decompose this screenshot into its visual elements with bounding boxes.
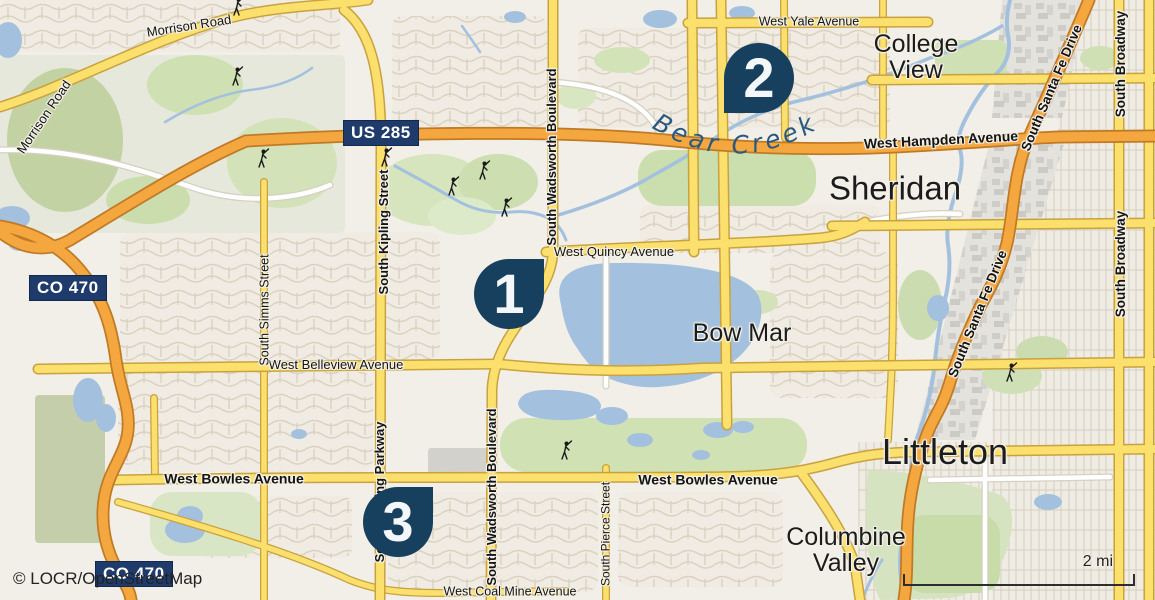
scale-tick-right — [1133, 574, 1135, 584]
place-label-columbine-valley: Columbine Valley — [781, 524, 911, 577]
marker-3-number: 3 — [382, 494, 413, 550]
place-label-littleton: Littleton — [882, 433, 1008, 471]
highway-shield-us285: US 285 — [343, 120, 419, 146]
scale-line — [903, 574, 1135, 586]
road-label-west-bowles-avenue-e: West Bowles Avenue — [638, 473, 778, 488]
place-label-college-view: College View — [856, 31, 976, 84]
highway-shield-co470-north: CO 470 — [29, 275, 107, 301]
road-label-south-kipling-street: South Kipling Street — [377, 170, 391, 295]
map-marker-3[interactable]: 3 — [363, 487, 433, 557]
road-label-south-broadway-s: South Broadway — [1114, 211, 1128, 318]
road-label-south-broadway-n: South Broadway — [1114, 11, 1128, 118]
road-label-south-simms-street: South Simms Street — [258, 254, 271, 365]
place-label-sheridan: Sheridan — [829, 172, 961, 207]
marker-2-number: 2 — [743, 50, 774, 106]
road-label-west-bowles-avenue-w: West Bowles Avenue — [164, 472, 304, 487]
map-marker-2[interactable]: 2 — [724, 43, 794, 113]
map-attribution: © LOCR/OpenStreetMap — [13, 569, 202, 589]
place-label-bow-mar: Bow Mar — [693, 320, 792, 346]
road-label-west-yale-avenue: West Yale Avenue — [759, 15, 860, 28]
scale-tick-left — [903, 574, 905, 584]
scale-bar: 2 mi — [903, 553, 1135, 586]
map-marker-1[interactable]: 1 — [474, 259, 544, 329]
road-label-south-wadsworth-boulevard-s: South Wadsworth Boulevard — [485, 408, 499, 585]
road-label-south-wadsworth-boulevard-n: South Wadsworth Boulevard — [545, 68, 559, 245]
road-label-west-quincy-avenue: West Quincy Avenue — [554, 245, 674, 259]
marker-1-number: 1 — [493, 266, 524, 322]
map-container: Bear Creek Morrison Road Morrison Road W… — [0, 0, 1155, 600]
road-label-west-coal-mine-avenue: West Coal Mine Avenue — [444, 585, 577, 598]
road-label-south-pierce-street: South Pierce Street — [600, 482, 613, 586]
scale-label: 2 mi — [903, 553, 1135, 571]
road-label-west-belleview-avenue: West Belleview Avenue — [269, 358, 404, 372]
